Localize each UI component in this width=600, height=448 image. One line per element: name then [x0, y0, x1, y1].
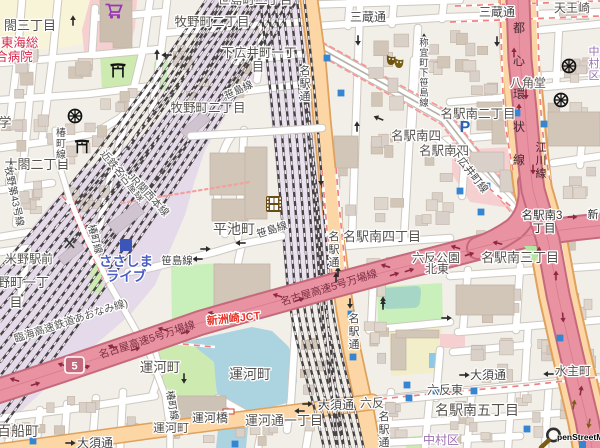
svg-text:駅: 駅: [329, 243, 340, 256]
svg-text:名: 名: [379, 409, 390, 423]
svg-text:学: 学: [0, 115, 12, 130]
svg-text:線: 線: [419, 97, 429, 109]
svg-text:ささしま: ささしま: [99, 254, 153, 269]
svg-text:野町一丁: 野町一丁: [0, 275, 49, 290]
svg-text:閤三丁目: 閤三丁目: [4, 18, 56, 33]
svg-text:中: 中: [589, 45, 600, 58]
svg-text:P: P: [460, 119, 471, 136]
svg-text:大須通: 大須通: [318, 398, 354, 412]
svg-text:状: 状: [513, 120, 525, 134]
svg-text:天王崎: 天王崎: [554, 1, 590, 15]
svg-text:合病院: 合病院: [0, 49, 33, 64]
svg-text:名: 名: [300, 63, 311, 77]
svg-text:水主町: 水主町: [555, 364, 591, 378]
svg-text:線: 線: [56, 148, 66, 161]
svg-text:駅: 駅: [349, 325, 360, 338]
svg-text:区: 区: [589, 70, 600, 82]
svg-text:線: 線: [513, 152, 525, 167]
svg-text:北東: 北東: [425, 262, 449, 276]
svg-text:運河町: 運河町: [140, 360, 181, 375]
svg-text:通: 通: [379, 436, 390, 448]
svg-text:環: 環: [513, 87, 525, 101]
svg-text:江: 江: [536, 141, 547, 154]
svg-text:六反: 六反: [360, 396, 384, 410]
svg-text:町: 町: [56, 139, 66, 150]
svg-text:三蔵通: 三蔵通: [350, 10, 386, 24]
svg-text:運河通一丁目: 運河通一丁目: [245, 413, 323, 428]
svg-text:牧野町二丁目: 牧野町二丁目: [174, 15, 249, 29]
svg-text:線: 線: [536, 166, 547, 180]
svg-text:名駅南3: 名駅南3: [522, 208, 563, 222]
svg-text:百船町: 百船町: [0, 423, 39, 439]
svg-text:笹島線: 笹島線: [161, 254, 193, 267]
svg-text:村: 村: [589, 56, 600, 70]
svg-text:名駅南五丁目: 名駅南五丁目: [435, 402, 519, 418]
svg-text:通: 通: [300, 90, 311, 103]
svg-text:三蔵通: 三蔵通: [479, 5, 515, 19]
svg-text:六反東: 六反東: [427, 383, 463, 397]
svg-text:下広井町一丁: 下広井町一丁: [221, 46, 296, 60]
svg-text:牧野町二丁目: 牧野町二丁目: [170, 101, 245, 115]
svg-text:名駅南二丁目: 名駅南二丁目: [440, 106, 515, 121]
svg-text:平池町: 平池町: [213, 221, 255, 237]
svg-text:名: 名: [349, 311, 360, 325]
svg-text:米野駅前: 米野駅前: [5, 251, 53, 266]
svg-text:大須通: 大須通: [470, 368, 506, 382]
svg-text:大須通: 大須通: [77, 436, 113, 448]
svg-text:運河橋: 運河橋: [192, 411, 228, 425]
svg-text:名駅南四: 名駅南四: [391, 128, 441, 143]
svg-text:新: 新: [588, 207, 599, 221]
svg-text:JR東海総: JR東海総: [0, 35, 39, 50]
svg-text:椿: 椿: [56, 126, 66, 139]
svg-text:中村区: 中村区: [423, 432, 459, 447]
svg-text:名駅南三丁目: 名駅南三丁目: [481, 250, 559, 265]
svg-text:目: 目: [252, 60, 265, 74]
svg-text:駅: 駅: [379, 423, 390, 436]
svg-text:川: 川: [536, 155, 547, 167]
svg-text:ライブ: ライブ: [106, 268, 147, 284]
svg-text:世島町二丁目: 世島町二丁目: [217, 0, 292, 7]
svg-text:目: 目: [9, 295, 22, 310]
svg-text:運河町: 運河町: [153, 421, 189, 435]
svg-text:名駅南四丁目: 名駅南四丁目: [343, 229, 421, 244]
svg-text:名: 名: [329, 229, 340, 243]
svg-text:5: 5: [71, 361, 77, 373]
svg-text:丁目: 丁目: [533, 223, 556, 235]
svg-text:駅: 駅: [300, 77, 311, 90]
svg-text:通: 通: [349, 338, 360, 351]
svg-text:運河町: 運河町: [229, 366, 271, 382]
svg-text:通: 通: [329, 256, 340, 269]
svg-text:心: 心: [513, 54, 525, 68]
svg-text:都: 都: [513, 21, 525, 35]
svg-text:penStreetMap: penStreetMap: [557, 432, 600, 442]
